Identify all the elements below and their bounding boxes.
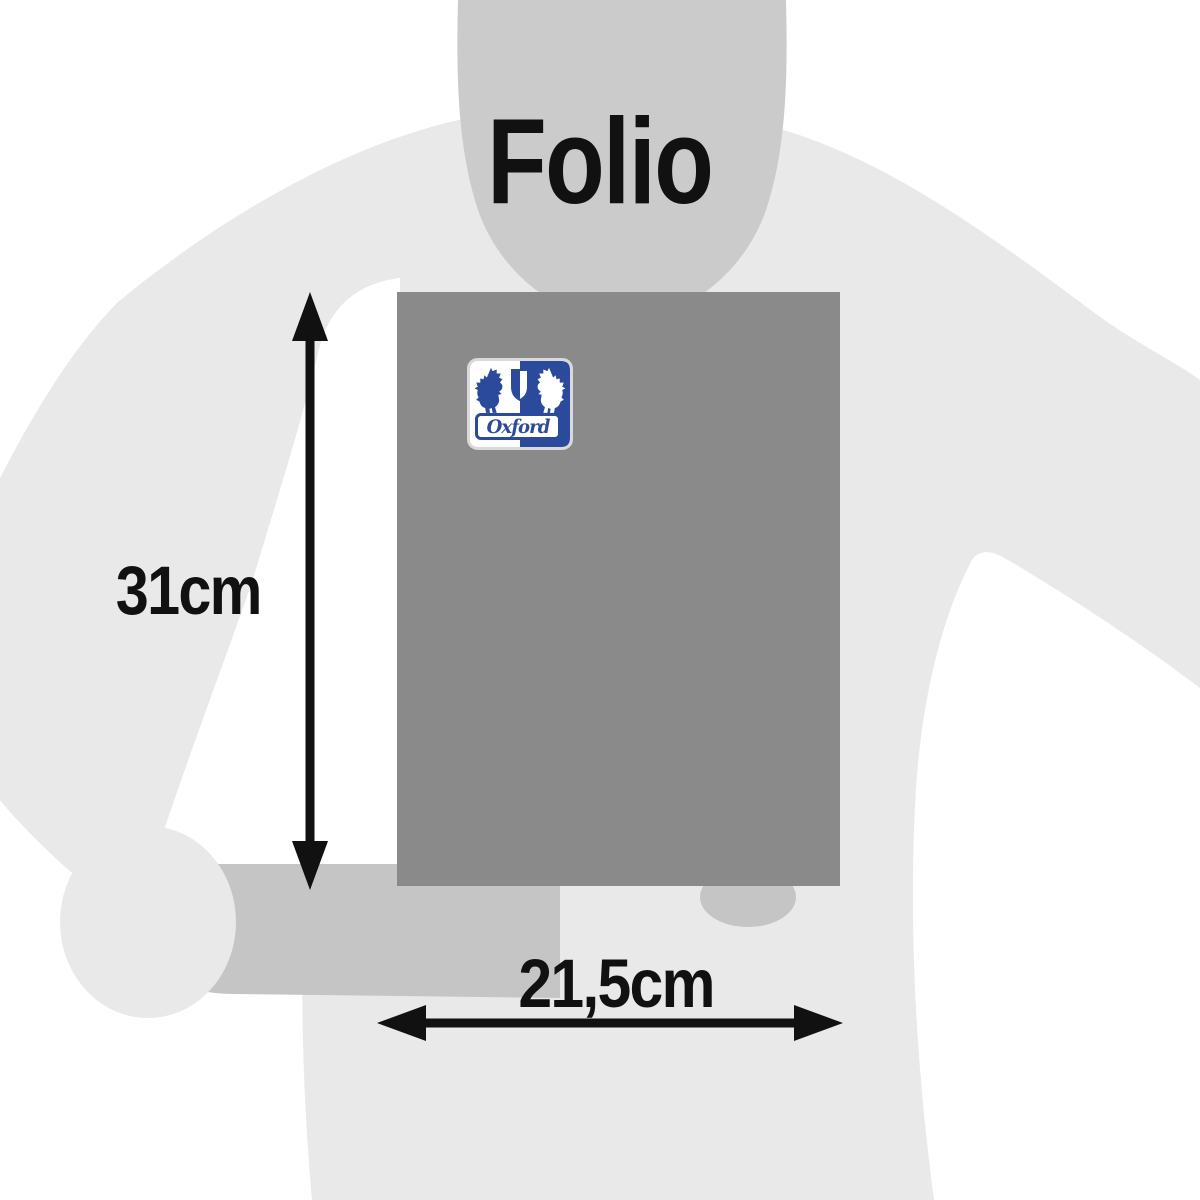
width-dimension-label: 21,5cm [466,949,766,1018]
page-title: Folio [380,100,820,222]
person-sleeve-cuff [60,826,236,1018]
product-dimension-image: Oxford Folio 31cm 21,5cm [0,0,1200,1200]
logo-brand-text: Oxford [487,416,550,438]
height-dimension-label: 31cm [73,556,303,625]
logo-banner: Oxford [475,413,561,440]
notebook-cover [397,292,840,886]
oxford-logo: Oxford [467,358,573,450]
